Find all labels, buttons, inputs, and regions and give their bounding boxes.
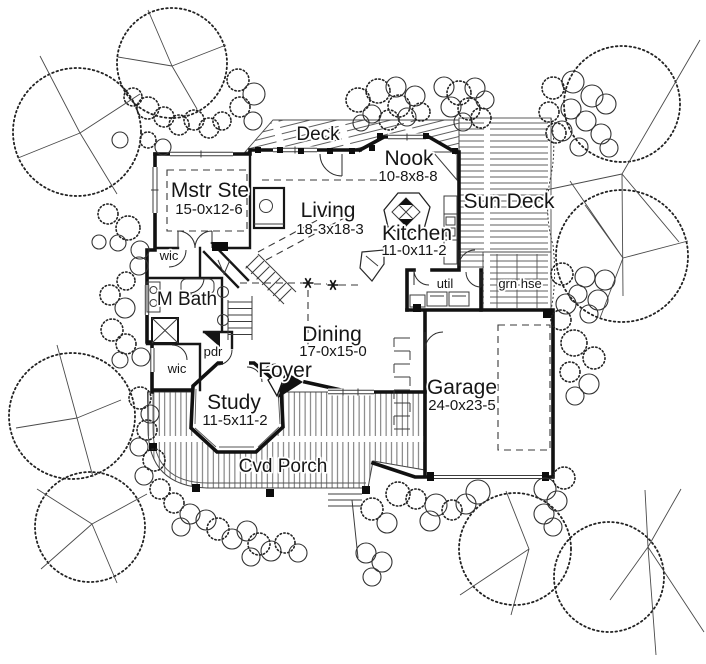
room-label-wic-lower: wic [167,361,187,376]
room-dims-living: 18-3x18-3 [296,221,364,238]
room-label-deck: Deck [296,124,340,145]
fireplace [254,188,284,228]
room-label-m-bath: M Bath [157,289,217,310]
room-label-foyer: Foyer [258,359,312,382]
tree [9,353,135,479]
room-dims-mstr-ste: 15-0x12-6 [175,201,243,218]
room-label-cvd-porch: Cvd Porch [239,456,328,477]
tree [459,493,571,605]
room-dims-dining: 17-0x15-0 [299,343,367,360]
room-label-grn-hse: grn hse [498,276,541,291]
room-label-wic-upper: wic [159,248,179,263]
room-dims-garage: 24-0x23-5 [428,397,496,414]
room-label-sun-deck: Sun Deck [463,190,555,213]
room-label-living: Living [301,199,356,222]
room-dims-kitchen: 11-0x11-2 [381,242,446,259]
room-label-study: Study [207,391,261,414]
room-label-garage: Garage [427,376,497,399]
stairs [228,254,296,340]
room-dims-study: 11-5x11-2 [202,412,267,429]
room-label-mstr-ste: Mstr Ste [171,179,249,202]
room-dims-nook: 10-8x8-8 [378,168,437,185]
room-label-pdr: pdr [204,344,223,359]
garage-door [427,472,549,481]
room-label-util: util [437,276,454,291]
floor-plan-page: Deck Nook 10-8x8-8 Mstr Ste 15-0x12-6 Li… [0,0,706,664]
tree [35,472,145,582]
room-label-nook: Nook [384,147,434,170]
floor-plan-drawing: Deck Nook 10-8x8-8 Mstr Ste 15-0x12-6 Li… [0,0,706,664]
